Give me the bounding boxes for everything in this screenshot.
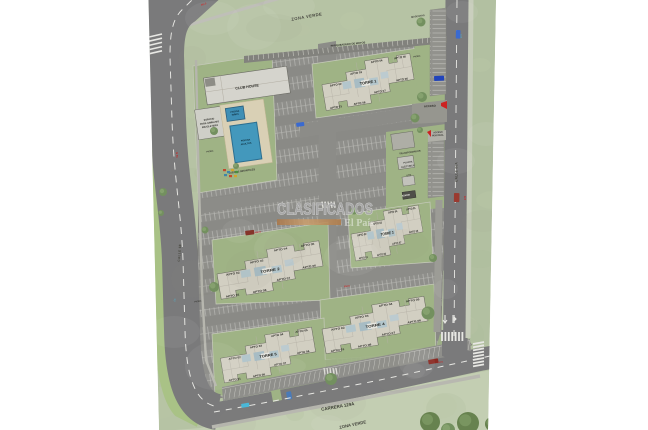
- svg-text:El País: El País: [344, 218, 374, 229]
- svg-text:E 73: E 73: [175, 153, 178, 159]
- svg-text:CLASIFICADOS: CLASIFICADOS: [277, 201, 373, 219]
